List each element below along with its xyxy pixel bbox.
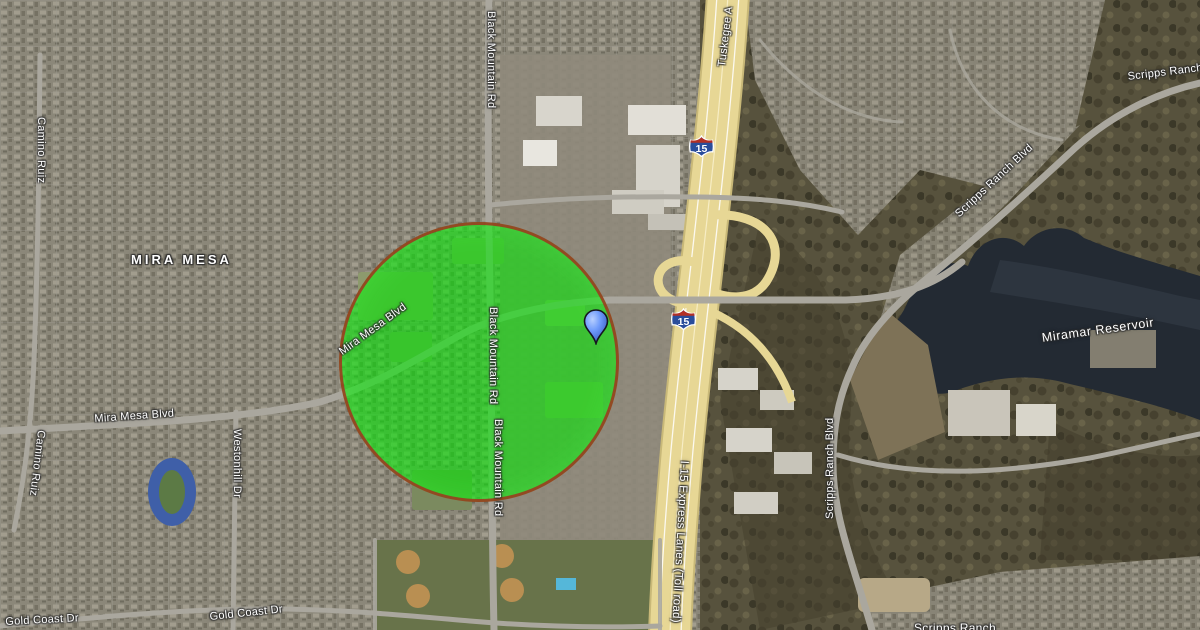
interstate-15-shield: 15 xyxy=(671,308,696,330)
interstate-15-shield: 15 xyxy=(689,135,714,157)
satellite-map[interactable]: 15 15 MIRA MESA Black Mountain Rd Tuskeg… xyxy=(0,0,1200,630)
map-marker[interactable] xyxy=(583,309,609,345)
geofence-circle[interactable] xyxy=(339,222,619,502)
shield-number: 15 xyxy=(678,316,690,328)
shield-number: 15 xyxy=(696,143,708,155)
